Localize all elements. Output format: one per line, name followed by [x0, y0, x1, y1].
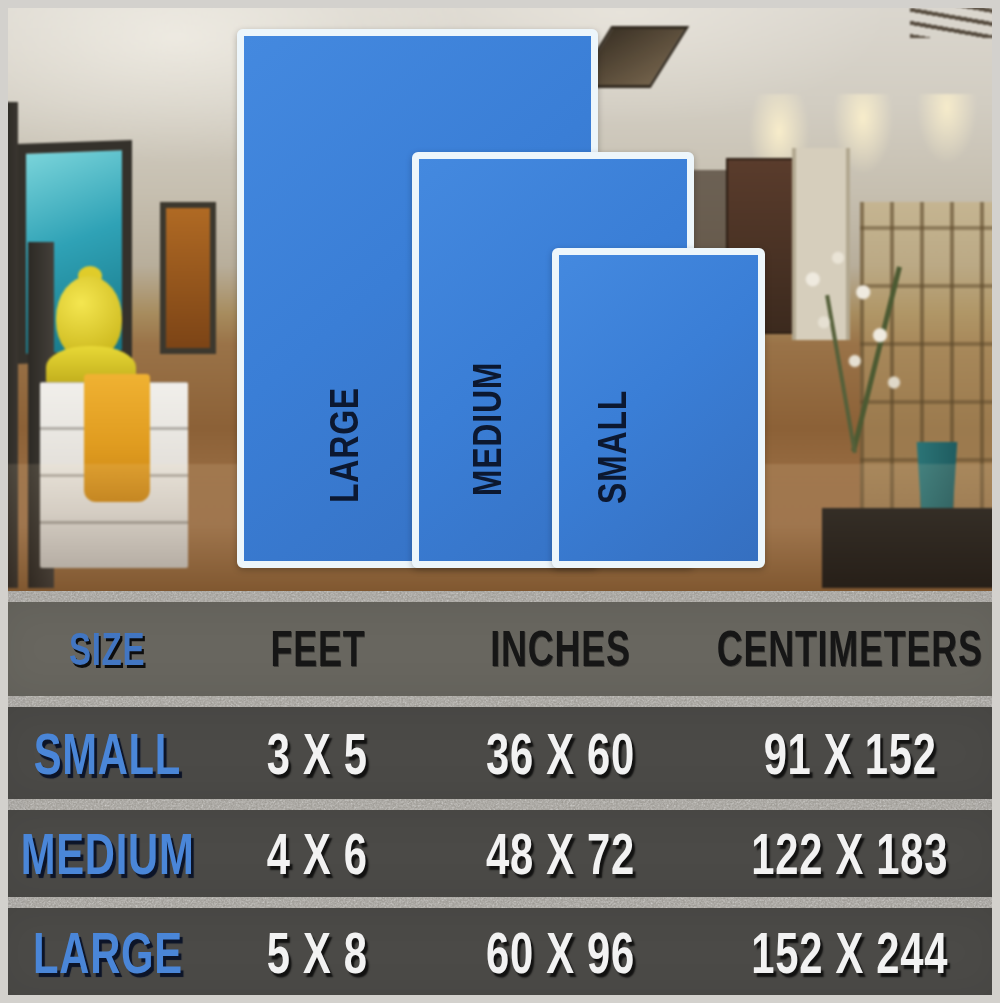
- medium-feet-value: 4 X 6: [267, 820, 368, 887]
- large-feet-value: 5 X 8: [267, 919, 368, 986]
- row-label-medium: MEDIUM: [21, 820, 195, 887]
- wall-art-frame: [160, 202, 216, 354]
- size-chart-section: SIZE FEET INCHES CENTIMETERS SMALL 3 X 5…: [0, 591, 1000, 1003]
- orchid-flowers: [782, 232, 922, 447]
- corner-ceiling-fixture: [910, 0, 994, 38]
- size-chart-header-row: SIZE FEET INCHES CENTIMETERS: [0, 602, 1000, 696]
- rug-size-overlay-small: SMALL: [552, 248, 765, 568]
- room-photo-section: LARGE MEDIUM SMALL: [0, 0, 1000, 591]
- divider: [0, 591, 1000, 602]
- table-row-large: LARGE 5 X 8 60 X 96 152 X 244: [0, 908, 1000, 997]
- row-label-large: LARGE: [33, 919, 183, 986]
- column-header-feet: FEET: [270, 620, 365, 678]
- large-inches-value: 60 X 96: [485, 919, 634, 986]
- divider: [0, 897, 1000, 908]
- small-feet-value: 3 X 5: [267, 720, 368, 787]
- column-header-centimeters: CENTIMETERS: [717, 620, 983, 678]
- table-row-small: SMALL 3 X 5 36 X 60 91 X 152: [0, 707, 1000, 799]
- small-cm-value: 91 X 152: [764, 720, 937, 787]
- table-row-medium: MEDIUM 4 X 6 48 X 72 122 X 183: [0, 810, 1000, 897]
- rug-size-infographic: LARGE MEDIUM SMALL SIZE FEET INCHES CENT…: [0, 0, 1000, 1003]
- large-cm-value: 152 X 244: [752, 919, 949, 986]
- rug-medium-label: MEDIUM: [465, 362, 510, 497]
- small-inches-value: 36 X 60: [485, 720, 634, 787]
- divider: [0, 997, 1000, 1003]
- column-header-size: SIZE: [69, 622, 146, 676]
- medium-cm-value: 122 X 183: [752, 820, 949, 887]
- column-header-inches: INCHES: [490, 620, 630, 678]
- rug-small-label: SMALL: [590, 390, 635, 504]
- medium-inches-value: 48 X 72: [485, 820, 634, 887]
- rug-large-label: LARGE: [322, 387, 367, 503]
- row-label-small: SMALL: [34, 720, 181, 787]
- divider: [0, 696, 1000, 707]
- divider: [0, 799, 1000, 810]
